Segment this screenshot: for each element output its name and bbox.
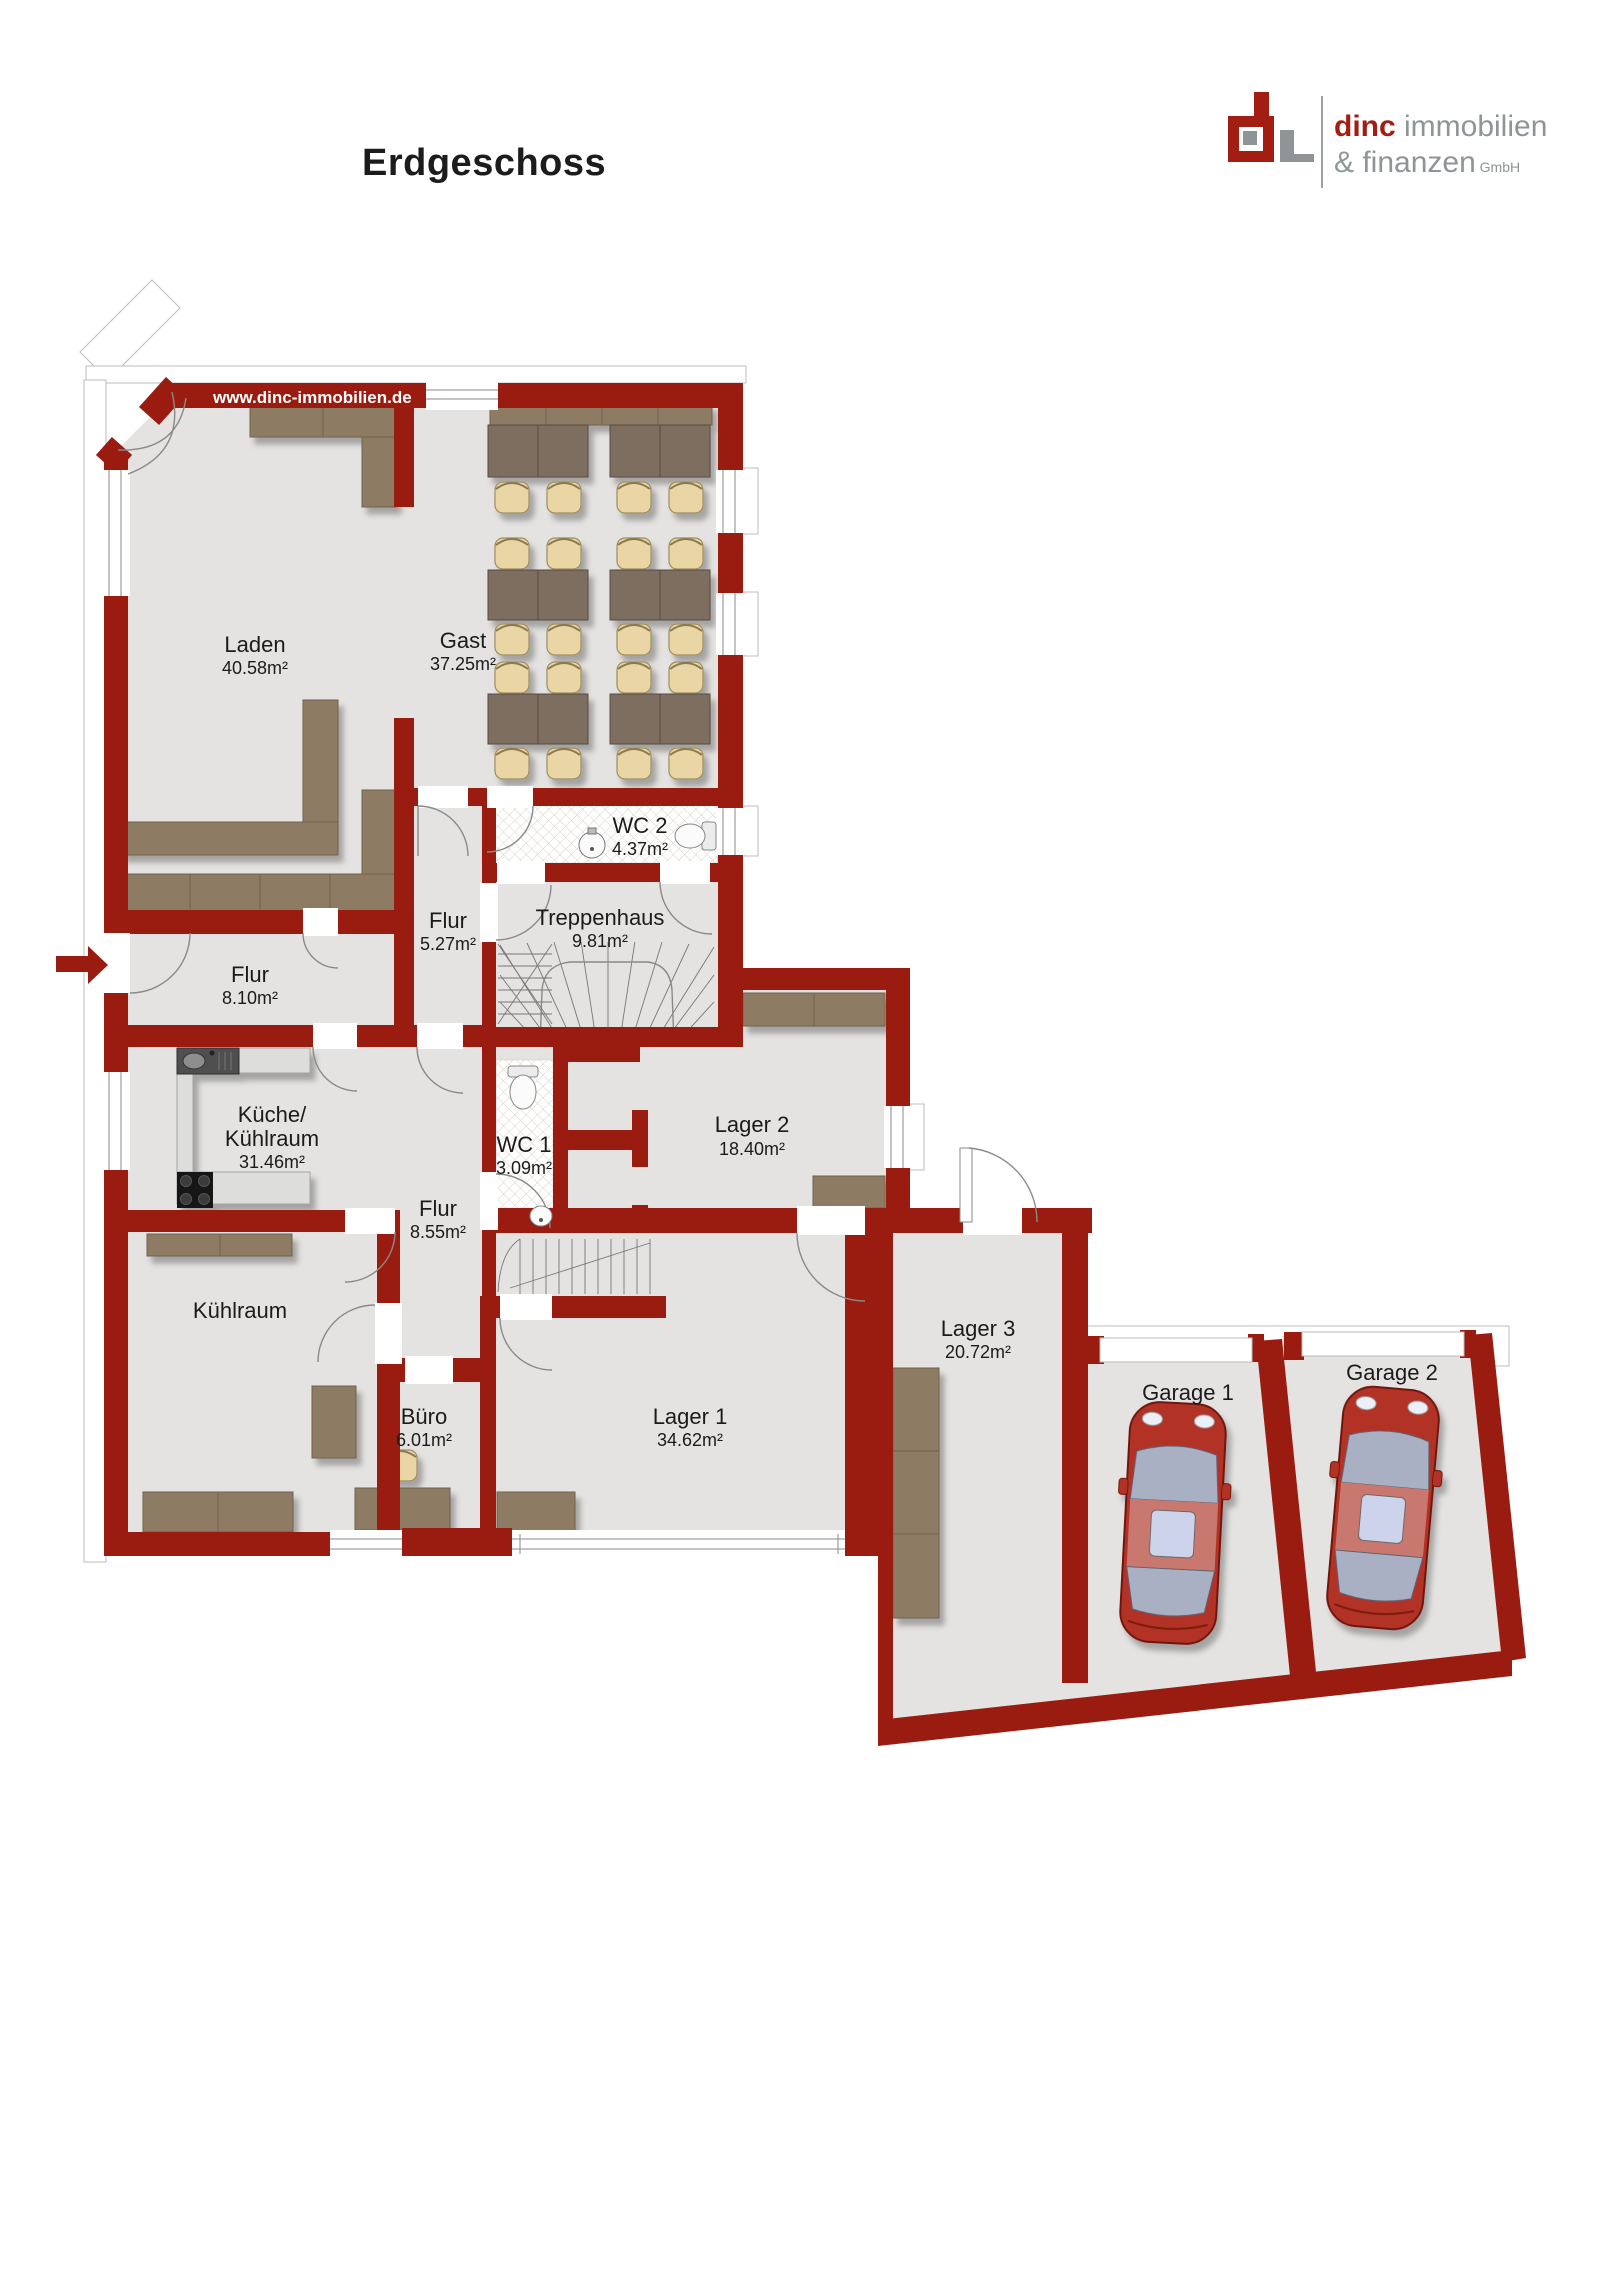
kitchen-sink-icon <box>177 1048 239 1074</box>
svg-text:Treppenhaus: Treppenhaus <box>536 905 665 930</box>
svg-text:Flur: Flur <box>419 1196 457 1221</box>
label-lager1: Lager 1 34.62m² <box>653 1404 728 1450</box>
label-lager2: Lager 2 18.40m² <box>715 1112 790 1159</box>
svg-text:5.27m²: 5.27m² <box>420 934 476 954</box>
svg-text:4.37m²: 4.37m² <box>612 839 668 859</box>
svg-text:Garage 2: Garage 2 <box>1346 1360 1438 1385</box>
wc2-toilet-icon <box>675 822 716 850</box>
svg-text:Büro: Büro <box>401 1404 447 1429</box>
svg-text:31.46m²: 31.46m² <box>239 1152 305 1172</box>
svg-text:20.72m²: 20.72m² <box>945 1342 1011 1362</box>
svg-text:Garage 1: Garage 1 <box>1142 1380 1234 1405</box>
svg-text:Flur: Flur <box>429 908 467 933</box>
wc1-sink-icon <box>530 1206 552 1226</box>
label-gast: Gast 37.25m² <box>430 628 496 674</box>
car-icon <box>1111 1400 1235 1646</box>
label-laden: Laden 40.58m² <box>222 632 288 678</box>
lager1-box <box>497 1492 575 1532</box>
floor-plan-page: Erdgeschoss dinc immobilien & finanzen G… <box>0 0 1600 2271</box>
stove-icon <box>177 1172 213 1208</box>
svg-text:18.40m²: 18.40m² <box>719 1139 785 1159</box>
desk <box>355 1488 450 1530</box>
wc1-toilet-icon <box>508 1066 538 1109</box>
svg-text:WC 2: WC 2 <box>613 813 668 838</box>
watermark: www.dinc-immobilien.de <box>212 388 412 407</box>
svg-text:8.10m²: 8.10m² <box>222 988 278 1008</box>
svg-text:Kühlraum: Kühlraum <box>193 1298 287 1323</box>
label-wc1: WC 1 3.09m² <box>496 1132 552 1178</box>
svg-text:40.58m²: 40.58m² <box>222 658 288 678</box>
svg-text:Laden: Laden <box>224 632 285 657</box>
svg-text:Lager 1: Lager 1 <box>653 1404 728 1429</box>
svg-text:6.01m²: 6.01m² <box>396 1430 452 1450</box>
label-buero: Büro 6.01m² <box>396 1404 452 1450</box>
label-garage1: Garage 1 <box>1142 1380 1234 1405</box>
label-garage2: Garage 2 <box>1346 1360 1438 1385</box>
svg-text:34.62m²: 34.62m² <box>657 1430 723 1450</box>
svg-text:3.09m²: 3.09m² <box>496 1158 552 1178</box>
label-wc2: WC 2 4.37m² <box>612 813 668 859</box>
label-kuehlraum: Kühlraum <box>193 1298 287 1323</box>
label-lager3: Lager 3 20.72m² <box>941 1316 1016 1362</box>
label-kueche: Küche/ Kühlraum 31.46m² <box>225 1102 319 1172</box>
svg-text:Kühlraum: Kühlraum <box>225 1126 319 1151</box>
svg-text:Lager 2: Lager 2 <box>715 1112 790 1137</box>
svg-text:Lager 3: Lager 3 <box>941 1316 1016 1341</box>
svg-text:8.55m²: 8.55m² <box>410 1222 466 1242</box>
svg-text:Küche/: Küche/ <box>238 1102 307 1127</box>
svg-text:Flur: Flur <box>231 962 269 987</box>
svg-text:WC 1: WC 1 <box>497 1132 552 1157</box>
floor-plan-drawing: www.dinc-immobilien.de Laden 40.58m² Gas… <box>0 0 1600 2271</box>
lager3-shelves <box>893 1368 939 1618</box>
svg-text:37.25m²: 37.25m² <box>430 654 496 674</box>
svg-text:Gast: Gast <box>440 628 486 653</box>
svg-text:9.81m²: 9.81m² <box>572 931 628 951</box>
